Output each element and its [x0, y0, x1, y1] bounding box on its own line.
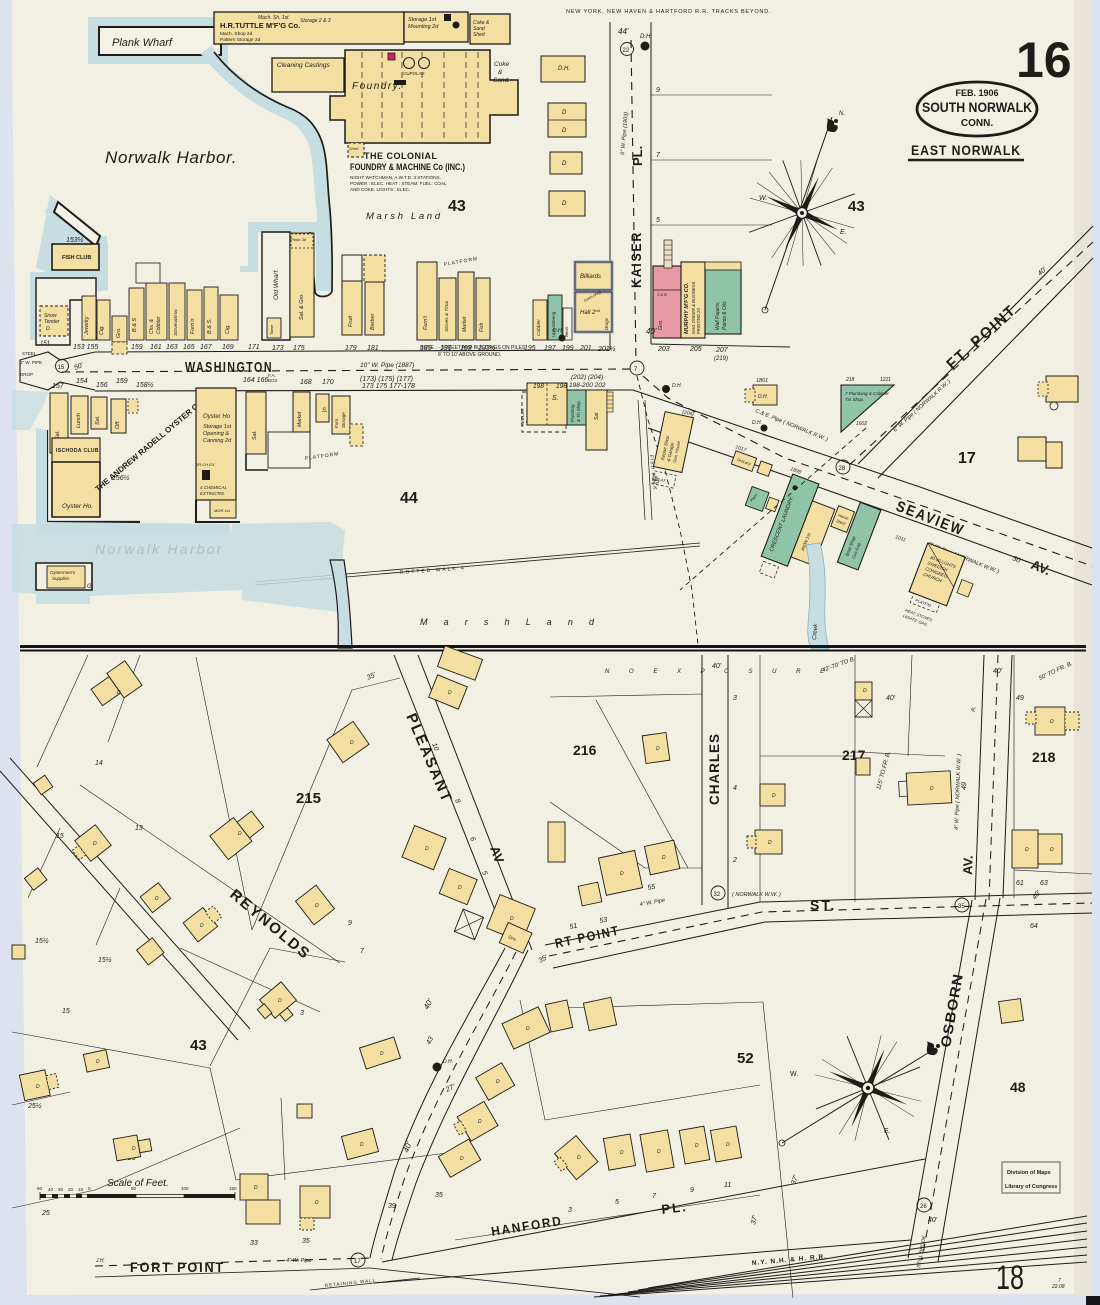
svg-text:15: 15 — [56, 833, 64, 840]
svg-text:50: 50 — [131, 1186, 137, 1191]
svg-text:FORT POINT: FORT POINT — [130, 1259, 225, 1275]
svg-text:22: 22 — [623, 48, 630, 54]
svg-text:D: D — [1025, 847, 1029, 853]
svg-text:40': 40' — [993, 668, 1003, 675]
svg-text:D: D — [662, 855, 666, 861]
svg-text:D: D — [360, 1142, 364, 1148]
svg-text:3: 3 — [733, 695, 737, 702]
svg-text:A.: A. — [971, 706, 978, 713]
svg-text:9: 9 — [656, 87, 660, 94]
svg-text:D: D — [772, 793, 776, 799]
svg-text:25½: 25½ — [27, 1102, 42, 1110]
svg-text:FISH CLUB: FISH CLUB — [62, 255, 91, 261]
svg-text:154: 154 — [76, 378, 88, 385]
svg-text:THE COLONIAL: THE COLONIAL — [364, 151, 438, 161]
svg-text:Barber: Barber — [370, 312, 376, 330]
svg-text:SOUTH NORWALK: SOUTH NORWALK — [922, 100, 1032, 115]
svg-text:165: 165 — [183, 344, 195, 351]
svg-text:Division of Maps: Division of Maps — [1007, 1170, 1051, 1176]
svg-text:CHARLES: CHARLES — [706, 733, 722, 805]
svg-text:16: 16 — [1016, 32, 1072, 88]
svg-text:Stoves & Tinw.: Stoves & Tinw. — [444, 300, 450, 332]
svg-text:D.H.: D.H. — [640, 34, 652, 40]
svg-text:50: 50 — [37, 1186, 43, 1191]
svg-text:MURPHY M'F'G CO.: MURPHY M'F'G CO. — [684, 282, 690, 334]
svg-text:Mounting 2d: Mounting 2d — [408, 24, 439, 30]
svg-text:PRINTING 2d: PRINTING 2d — [696, 308, 701, 334]
svg-text:Marsh Land: Marsh Land — [366, 211, 442, 222]
svg-text:D: D — [562, 201, 567, 207]
svg-text:175: 175 — [293, 345, 305, 352]
svg-text:191: 191 — [440, 345, 452, 352]
svg-text:173 175 177-178: 173 175 177-178 — [362, 383, 415, 390]
svg-text:Sand.: Sand. — [493, 77, 510, 84]
svg-text:Gro.: Gro. — [116, 327, 122, 338]
svg-text:171: 171 — [248, 344, 260, 351]
svg-text:35: 35 — [302, 1238, 310, 1245]
svg-text:Wall Papers,: Wall Papers, — [715, 302, 721, 330]
svg-text:G.: G. — [87, 584, 93, 590]
svg-text:NOTE . - STREET AND BUILDINGS: NOTE . - STREET AND BUILDINGS ON PILES — [420, 345, 526, 351]
svg-text:S.: S. — [552, 395, 559, 402]
svg-text:NIGHT WATCHMAN, A.W.T.D. 3 STA: NIGHT WATCHMAN, A.W.T.D. 3 STATIONS. — [350, 175, 441, 180]
svg-text:35: 35 — [958, 904, 965, 910]
svg-text:Storage: Storage — [341, 412, 346, 428]
svg-text:Sal.: Sal. — [95, 416, 101, 425]
svg-text:B & S: B & S — [132, 318, 138, 332]
svg-text:D: D — [96, 1059, 100, 1065]
svg-text:25: 25 — [41, 1210, 50, 1217]
svg-text:Sal.: Sal. — [252, 431, 258, 440]
svg-text:EAST NORWALK: EAST NORWALK — [911, 143, 1021, 158]
svg-text:DROP: DROP — [20, 372, 33, 377]
svg-text:D.H.: D.H. — [752, 420, 762, 426]
svg-text:D: D — [278, 998, 282, 1004]
svg-text:&: & — [498, 69, 502, 76]
svg-text:10: 10 — [78, 1187, 84, 1192]
svg-text:Cobbler: Cobbler — [156, 316, 162, 334]
svg-text:201: 201 — [579, 345, 592, 352]
svg-text:MGR 1st: MGR 1st — [214, 508, 231, 513]
svg-text:FEB. 1906: FEB. 1906 — [955, 88, 998, 98]
svg-text:POWER : ELEC. HEAT : STEAM. FU: POWER : ELEC. HEAT : STEAM. FUEL: COAL — [350, 181, 447, 186]
svg-text:Market: Market — [462, 316, 468, 332]
svg-text:26: 26 — [920, 1204, 927, 1210]
svg-text:44: 44 — [400, 490, 418, 507]
svg-text:168: 168 — [300, 379, 312, 386]
svg-text:40': 40' — [646, 327, 657, 336]
svg-text:Shed: Shed — [349, 146, 359, 151]
svg-text:D: D — [695, 1143, 699, 1149]
svg-text:CUPOLAS: CUPOLAS — [403, 71, 425, 76]
svg-text:43: 43 — [448, 198, 466, 215]
svg-text:63: 63 — [1040, 880, 1048, 887]
svg-text:158½: 158½ — [136, 381, 154, 389]
svg-text:13: 13 — [135, 825, 143, 832]
svg-text:179: 179 — [345, 345, 357, 352]
svg-text:199: 199 — [562, 345, 574, 352]
svg-text:Tender: Tender — [44, 319, 60, 325]
svg-text:Drugs: Drugs — [604, 317, 609, 330]
svg-text:198: 198 — [533, 383, 544, 390]
svg-text:Billiards: Billiards — [580, 274, 601, 280]
svg-text:FOUNDRY & MACHINE Co (INC.): FOUNDRY & MACHINE Co (INC.) — [350, 162, 465, 172]
svg-text:W.: W. — [759, 195, 767, 202]
svg-text:151: 151 — [40, 341, 50, 347]
svg-text:167: 167 — [200, 344, 213, 351]
svg-text:Furn't: Furn't — [423, 316, 429, 330]
svg-text:D: D — [657, 1149, 661, 1155]
svg-text:153 155: 153 155 — [73, 344, 98, 351]
svg-text:32: 32 — [714, 892, 721, 898]
svg-text:Plank Wharf: Plank Wharf — [112, 37, 173, 49]
svg-text:Off.: Off. — [115, 420, 121, 429]
svg-text:D: D — [315, 903, 319, 909]
svg-text:1R.CH.EX.: 1R.CH.EX. — [196, 462, 216, 467]
svg-text:157: 157 — [52, 383, 65, 390]
svg-text:40': 40' — [886, 695, 896, 702]
svg-text:4" W. Pipe: 4" W. Pipe — [286, 1258, 312, 1264]
svg-text:(219): (219) — [714, 356, 728, 362]
svg-text:D: D — [460, 1156, 464, 1162]
svg-text:D: D — [458, 885, 462, 891]
svg-text:Opening &: Opening & — [203, 431, 229, 437]
svg-text:Cig.: Cig. — [99, 325, 105, 335]
svg-text:10" W. Pipe (1887): 10" W. Pipe (1887) — [360, 362, 414, 369]
svg-text:193½: 193½ — [478, 344, 496, 352]
svg-text:39: 39 — [388, 1203, 396, 1210]
svg-text:D: D — [478, 1119, 482, 1125]
svg-text:Jewelry: Jewelry — [84, 315, 90, 336]
svg-text:D: D — [315, 1200, 319, 1206]
svg-text:Cig.: Cig. — [225, 324, 231, 334]
svg-text:Shed: Shed — [473, 32, 485, 38]
svg-text:17: 17 — [958, 450, 976, 467]
svg-text:(173) (175) (177): (173) (175) (177) — [360, 376, 413, 383]
svg-text:D.H.: D.H. — [443, 1059, 453, 1065]
svg-text:( NORWALK W.W. ): ( NORWALK W.W. ) — [732, 892, 781, 898]
svg-text:D: D — [577, 1155, 581, 1161]
svg-text:H.R.TUTTLE M'F'G Co.: H.R.TUTTLE M'F'G Co. — [220, 21, 300, 30]
svg-text:Lunch: Lunch — [76, 413, 82, 428]
svg-text:207: 207 — [715, 347, 729, 354]
svg-text:43: 43 — [848, 198, 865, 215]
svg-text:D.: D. — [46, 326, 51, 332]
svg-text:D: D — [620, 1150, 624, 1156]
svg-text:D: D — [117, 690, 121, 696]
svg-text:100: 100 — [181, 1186, 189, 1191]
svg-text:159: 159 — [131, 344, 143, 351]
svg-text:1602: 1602 — [856, 421, 867, 427]
svg-text:40': 40' — [712, 663, 722, 670]
svg-text:D.H.: D.H. — [558, 66, 570, 72]
svg-text:197: 197 — [544, 345, 557, 352]
svg-text:D: D — [510, 916, 514, 922]
svg-text:49: 49 — [1016, 695, 1024, 702]
svg-text:40': 40' — [928, 1217, 938, 1224]
svg-text:43: 43 — [190, 1037, 207, 1054]
svg-text:170: 170 — [322, 379, 334, 386]
svg-text:D: D — [238, 831, 242, 837]
svg-text:4 CHEMICAL: 4 CHEMICAL — [200, 485, 228, 490]
svg-text:D: D — [656, 746, 660, 752]
svg-text:18: 18 — [996, 1259, 1024, 1297]
svg-text:8' TO 10' ABOVE GROUND.: 8' TO 10' ABOVE GROUND. — [438, 352, 501, 358]
svg-text:Fruit: Fruit — [348, 316, 354, 327]
svg-text:15½: 15½ — [98, 956, 112, 964]
svg-text:Mach. Sh. 1st: Mach. Sh. 1st — [258, 15, 289, 21]
svg-text:Norwalk Harbor.: Norwalk Harbor. — [105, 148, 238, 167]
svg-text:20: 20 — [68, 1187, 74, 1192]
svg-text:D: D — [526, 1026, 530, 1032]
svg-text:D: D — [254, 1185, 258, 1191]
svg-text:ST.: ST. — [810, 897, 836, 913]
svg-text:D: D — [380, 1051, 384, 1057]
svg-text:164 166: 164 166 — [243, 377, 268, 384]
svg-text:E.: E. — [840, 229, 847, 236]
svg-text:KAISER: KAISER — [628, 231, 644, 288]
svg-text:35: 35 — [435, 1192, 443, 1199]
svg-text:40: 40 — [48, 1187, 54, 1192]
svg-text:EXTING'RS.: EXTING'RS. — [200, 491, 225, 496]
svg-text:3: 3 — [568, 1207, 572, 1214]
svg-text:30: 30 — [58, 1187, 64, 1192]
svg-text:PL.: PL. — [661, 1199, 689, 1217]
svg-text:D: D — [562, 161, 567, 167]
svg-text:M a r s h L a n d: M a r s h L a n d — [420, 617, 600, 627]
svg-text:28: 28 — [839, 466, 846, 472]
svg-text:Scale of Feet.: Scale of Feet. — [107, 1178, 169, 1189]
svg-text:D: D — [562, 110, 567, 116]
svg-text:153½: 153½ — [66, 236, 84, 244]
svg-text:Furn'o: Furn'o — [190, 319, 196, 334]
svg-text:49: 49 — [961, 782, 968, 790]
svg-text:PL.: PL. — [630, 146, 645, 166]
svg-text:Supplies: Supplies — [52, 576, 70, 581]
svg-text:Cobbler: Cobbler — [536, 319, 542, 336]
svg-text:D: D — [930, 786, 934, 792]
svg-text:193: 193 — [460, 345, 472, 352]
svg-text:Oyster Ho: Oyster Ho — [203, 414, 231, 420]
svg-text:AV.: AV. — [960, 855, 976, 875]
svg-text:1211: 1211 — [880, 377, 891, 383]
svg-text:News: News — [564, 326, 569, 337]
svg-text:D: D — [36, 1084, 40, 1090]
svg-text:5: 5 — [615, 1199, 619, 1206]
svg-text:J.H.: J.H. — [95, 1258, 105, 1264]
svg-text:169: 169 — [222, 344, 234, 351]
svg-text:201½: 201½ — [597, 345, 616, 353]
svg-text:11: 11 — [724, 1182, 731, 1189]
svg-text:BOX: BOX — [268, 378, 278, 383]
svg-text:ISCHODA CLUB: ISCHODA CLUB — [56, 448, 99, 454]
svg-text:195: 195 — [524, 345, 536, 352]
svg-text:Library of Congress: Library of Congress — [1005, 1184, 1057, 1190]
svg-text:181: 181 — [367, 345, 379, 352]
svg-text:33: 33 — [250, 1240, 258, 1247]
svg-text:173: 173 — [272, 345, 284, 352]
svg-text:Tin Shop.: Tin Shop. — [845, 397, 864, 402]
svg-text:150: 150 — [229, 1186, 237, 1191]
svg-text:163: 163 — [166, 344, 178, 351]
svg-text:Furn.: Furn. — [334, 417, 339, 428]
svg-text:AND COKE. LIGHTS : ELEC.: AND COKE. LIGHTS : ELEC. — [350, 187, 410, 192]
svg-text:Twine: Twine — [269, 324, 274, 335]
svg-text:D: D — [93, 841, 97, 847]
svg-text:218: 218 — [845, 377, 855, 383]
svg-text:48: 48 — [1010, 1079, 1026, 1095]
svg-text:196: 196 — [556, 383, 567, 390]
svg-text:D: D — [200, 923, 204, 929]
svg-text:D: D — [425, 846, 429, 852]
svg-text:D: D — [155, 896, 159, 902]
svg-text:Storage 1st: Storage 1st — [408, 17, 437, 23]
svg-text:2: 2 — [732, 857, 737, 864]
svg-text:N.: N. — [839, 111, 845, 117]
svg-text:KEELER: KEELER — [520, 407, 525, 426]
svg-text:61: 61 — [1016, 880, 1024, 887]
svg-text:Oyster Ho.: Oyster Ho. — [62, 503, 93, 510]
svg-text:D: D — [726, 1142, 730, 1148]
svg-text:14: 14 — [95, 760, 103, 767]
svg-text:Storage 1st: Storage 1st — [203, 424, 232, 430]
svg-text:NEW YORK, NEW HAVEN & HAR: NEW YORK, NEW HAVEN & HARTFORD R.R. TRAC… — [566, 9, 771, 15]
svg-text:64: 64 — [1030, 923, 1038, 930]
svg-text:Sal. & Gro.: Sal. & Gro. — [299, 293, 305, 320]
svg-text:52: 52 — [737, 1050, 754, 1067]
svg-text:15½: 15½ — [35, 937, 49, 945]
svg-text:218: 218 — [1032, 749, 1056, 765]
svg-text:198-200 202: 198-200 202 — [569, 382, 606, 389]
svg-text:Fish: Fish — [479, 322, 485, 332]
svg-text:Canning 2d: Canning 2d — [203, 438, 232, 444]
svg-text:Gro.: Gro. — [658, 319, 664, 330]
svg-text:D: D — [562, 128, 567, 134]
svg-text:D: D — [620, 871, 624, 877]
svg-text:Mach. Shop 2d: Mach. Shop 2d — [220, 31, 253, 37]
svg-text:1801: 1801 — [756, 378, 768, 384]
svg-text:& Tin Shop: & Tin Shop — [576, 401, 581, 422]
svg-text:D: D — [496, 1079, 500, 1085]
svg-text:Plumbing: Plumbing — [570, 404, 575, 422]
svg-text:Photo 3d: Photo 3d — [290, 237, 307, 242]
svg-text:Paints & Oils: Paints & Oils — [722, 301, 728, 330]
svg-text:15: 15 — [58, 365, 65, 371]
svg-text:9: 9 — [690, 1187, 694, 1194]
svg-text:D: D — [350, 740, 354, 746]
svg-text:Coke: Coke — [494, 61, 510, 68]
svg-text:156½: 156½ — [112, 474, 130, 482]
svg-text:15: 15 — [62, 1008, 70, 1015]
svg-text:B & S.: B & S. — [207, 318, 213, 334]
svg-text:WASHINGTON: WASHINGTON — [185, 359, 273, 376]
svg-text:Old Wharf.: Old Wharf. — [273, 269, 280, 300]
svg-text:Chs. &: Chs. & — [149, 318, 155, 334]
svg-text:5: 5 — [656, 217, 660, 224]
svg-text:D: D — [1050, 719, 1054, 725]
svg-text:189: 189 — [420, 345, 432, 352]
svg-text:D: D — [448, 690, 452, 696]
svg-text:161: 161 — [150, 344, 162, 351]
svg-text:3: 3 — [300, 1010, 304, 1017]
svg-text:D.H.: D.H. — [672, 383, 682, 389]
svg-text:44': 44' — [618, 27, 629, 36]
svg-text:216: 216 — [573, 742, 597, 758]
svg-text:159: 159 — [116, 378, 128, 385]
svg-text:(202) (204): (202) (204) — [571, 374, 603, 381]
svg-text:Market: Market — [297, 411, 303, 427]
svg-text:17: 17 — [354, 1259, 361, 1265]
svg-text:D: D — [1050, 847, 1054, 853]
svg-text:Pattern Storage 3d: Pattern Storage 3d — [220, 37, 261, 43]
svg-text:156: 156 — [96, 382, 108, 389]
svg-text:4: 4 — [733, 785, 737, 792]
svg-text:9: 9 — [348, 920, 352, 927]
svg-text:W.: W. — [790, 1071, 798, 1078]
svg-text:3 & B: 3 & B — [657, 292, 667, 297]
svg-text:S.: S. — [322, 408, 328, 414]
svg-text:1" W. PIPE: 1" W. PIPE — [20, 360, 42, 365]
svg-text:D: D — [132, 1146, 136, 1152]
svg-text:Storage 2 & 3: Storage 2 & 3 — [300, 18, 331, 24]
svg-text:STEEL: STEEL — [22, 351, 37, 356]
svg-text:D.H.: D.H. — [758, 394, 768, 400]
svg-text:7 Plumbing & Cabinet: 7 Plumbing & Cabinet — [845, 391, 889, 396]
svg-text:Sal.: Sal. — [594, 411, 600, 420]
svg-text:Oystermen's: Oystermen's — [50, 570, 76, 575]
svg-text:D: D — [863, 688, 867, 694]
svg-text:D.H.: D.H. — [553, 328, 563, 334]
svg-text:215: 215 — [296, 790, 321, 807]
svg-text:Stoves&tinw.: Stoves&tinw. — [173, 309, 179, 336]
svg-text:D: D — [768, 840, 772, 846]
svg-text:22.08: 22.08 — [1051, 1284, 1065, 1290]
svg-text:203: 203 — [657, 346, 670, 353]
svg-text:CONN.: CONN. — [961, 118, 993, 129]
svg-text:E.: E. — [884, 1128, 891, 1135]
svg-text:Cleaning Castings: Cleaning Castings — [277, 62, 331, 69]
svg-text:205: 205 — [689, 346, 702, 353]
